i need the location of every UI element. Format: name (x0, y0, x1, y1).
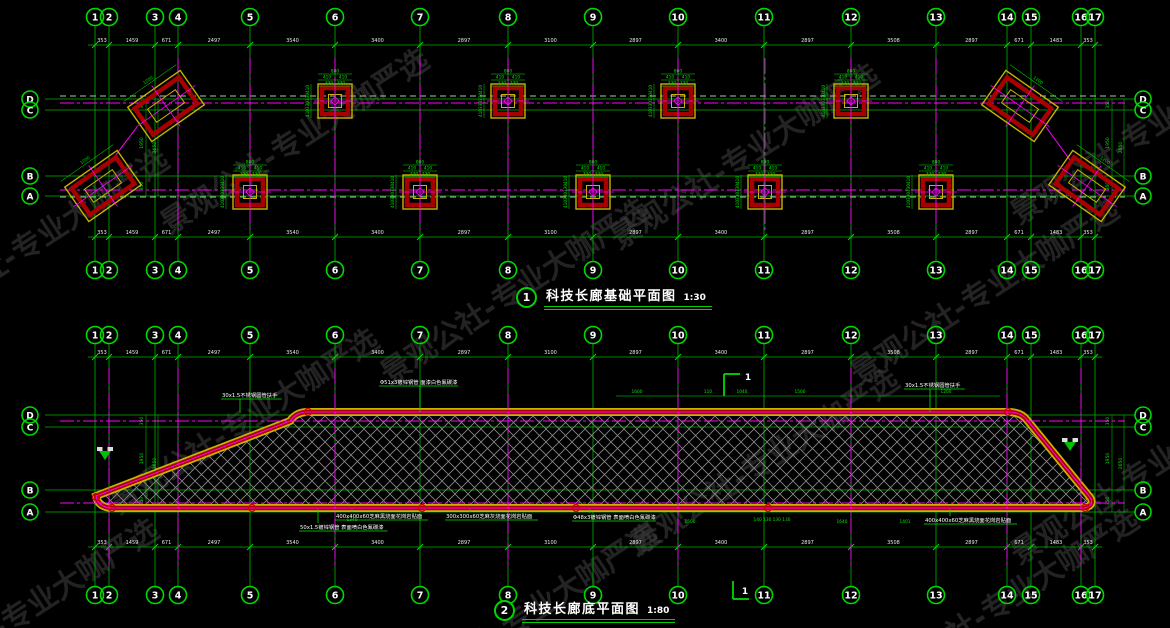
footing-dim-value: 410 (220, 176, 226, 184)
footing-dim-value: 410 (238, 166, 246, 172)
detail-dim: 1200 (941, 389, 952, 395)
footing-dim-value: 410 (478, 109, 484, 117)
dimension-value: 353 (1083, 38, 1093, 44)
footing-dim-value: 410 (496, 75, 504, 81)
dimension-value: 3400 (715, 38, 728, 44)
dimension-value: 2897 (965, 230, 978, 236)
footing-dim-value: 410 (735, 200, 741, 208)
footing-dim-value: 330 (305, 101, 311, 109)
detail-dim: 1500 (795, 389, 806, 395)
footing-dim-value: 410 (563, 200, 569, 208)
dimension-value: 2897 (629, 540, 642, 546)
dimension-value: 1459 (126, 350, 139, 356)
footing-dim-value: 330 (767, 172, 775, 178)
dimension-value: 3100 (544, 540, 557, 546)
centerline-diagonal (1046, 127, 1070, 160)
axis-bubble-label: 4 (175, 330, 182, 341)
note-text: 30x1.5不锈钢圆管扶手 (222, 391, 278, 399)
note-text: Φ48x3镀锌钢管 表面喷白色氟碳漆 (573, 513, 656, 521)
dimension-value: 353 (97, 38, 107, 44)
cad-viewport: 景观公社-专业大咖严选景观公社-专业大咖严选景观公社-专业大咖严选景观公社-专业… (0, 0, 1170, 628)
dimension-value: 671 (162, 38, 172, 44)
axis-bubble-label: 13 (929, 12, 942, 23)
dimension-value: 3100 (544, 38, 557, 44)
drawing-2-scale: 1:80 (647, 606, 669, 616)
footing-dim-value: 330 (735, 184, 741, 192)
drawing-2-label: 科技长廊底平面图 (524, 602, 640, 617)
axis-bubble-label: 17 (1088, 12, 1101, 23)
drawing-2-title: 2 科技长廊底平面图1:80 (494, 598, 675, 623)
dimension-value: 3100 (544, 350, 557, 356)
row-dim-value: 1950 (139, 453, 145, 465)
dimension-value: 3400 (371, 540, 384, 546)
dimension-value: 3400 (715, 540, 728, 546)
footing-rotated: 1200 (117, 58, 210, 148)
drawing-1-scale: 1:30 (684, 293, 706, 303)
axis-bubble-label: 12 (844, 12, 857, 23)
footing-dim-value: 1200 (142, 75, 155, 86)
footing-dim-value: 410 (940, 166, 948, 172)
footing (654, 74, 699, 122)
dimension-value: 2897 (801, 350, 814, 356)
dimension-value: 671 (162, 230, 172, 236)
dimension-value: 2897 (629, 350, 642, 356)
axis-bubble-label: 14 (1000, 12, 1014, 23)
axis-bubble-label: A (1140, 508, 1147, 518)
dimension-value: 671 (1014, 350, 1024, 356)
axis-bubble-label: 5 (247, 265, 254, 276)
drawing-1-number-bubble: 1 (516, 287, 537, 308)
dimension-value: 353 (1083, 540, 1093, 546)
axis-bubble-label: 11 (757, 12, 770, 23)
dimension-value: 353 (97, 230, 107, 236)
footing-dim-value: 330 (563, 192, 569, 200)
footing-dim-value: 330 (755, 172, 763, 178)
watermark-text: 景观公社-专业大咖严选 (0, 512, 165, 628)
footing-dim-value: 410 (735, 176, 741, 184)
drawing-1-label: 科技长廊基础平面图 (546, 289, 677, 304)
footing-dim-value: 800 (331, 69, 339, 75)
cad-drawing-svg: 景观公社-专业大咖严选景观公社-专业大咖严选景观公社-专业大咖严选景观公社-专业… (0, 0, 1170, 628)
dimension-value: 2897 (458, 230, 471, 236)
footing-dim-value: 800 (674, 69, 682, 75)
footing-dim-value: 410 (906, 176, 912, 184)
dimension-value: 3400 (715, 350, 728, 356)
dimension-value: 1483 (1050, 230, 1063, 236)
dimension-value: 2897 (965, 38, 978, 44)
row-dim-overall: 2650 (1118, 458, 1124, 470)
footing-dim-value: 330 (220, 184, 226, 192)
axis-bubble-label: 15 (1024, 590, 1037, 601)
dimension-value: 1483 (1050, 38, 1063, 44)
dimension-value: 2897 (629, 38, 642, 44)
detail-dim: 1500 (685, 519, 696, 525)
footing-dim-value: 800 (246, 160, 254, 166)
footing-dim-value: 410 (682, 75, 690, 81)
footing-dim-value: 410 (648, 109, 654, 117)
footing-dim-value: 330 (220, 192, 226, 200)
note-text: 300x300x60芝麻灰烧面花岗岩贴面 (446, 512, 532, 520)
dimension-value: 3508 (887, 38, 900, 44)
axis-bubble-label: 1 (92, 265, 99, 276)
detail-dim: 1401 (900, 519, 911, 525)
footing-dim-value: 1200 (1032, 75, 1045, 86)
footing-dim-value: 330 (648, 101, 654, 109)
dimension-value: 671 (1014, 230, 1024, 236)
footing-dim-value: 330 (252, 172, 260, 178)
axis-bubble-label: 9 (590, 330, 597, 341)
dimension-value: 2497 (208, 350, 221, 356)
axis-bubble-label: 15 (1024, 12, 1037, 23)
footing-dim-value: 330 (583, 172, 591, 178)
axis-bubble-label: 11 (757, 590, 770, 601)
section-mark-label: 1 (742, 587, 748, 597)
footing (912, 165, 957, 213)
note-text: 50x1.5镀锌钢管 表面喷白色氟碳漆 (300, 523, 384, 531)
axis-bubble-label: 4 (175, 265, 182, 276)
footing-dim-value: 330 (510, 81, 518, 87)
footing-dim-value: 410 (839, 75, 847, 81)
axis-bubble-label: 3 (152, 330, 159, 341)
footing-dim-value: 410 (906, 200, 912, 208)
dimension-value: 2897 (965, 350, 978, 356)
footing-dim-value: 800 (847, 69, 855, 75)
axis-bubble-label: 12 (844, 590, 857, 601)
detail-dim: 1600 (632, 389, 643, 395)
axis-bubble-label: 5 (247, 590, 254, 601)
dimension-value: 2897 (801, 38, 814, 44)
axis-bubble-label: 1 (92, 330, 99, 341)
axis-bubble-label: C (27, 106, 34, 116)
axis-bubble-label: B (1140, 172, 1147, 182)
section-mark-label: 1 (745, 373, 751, 383)
axis-bubble-label: 15 (1024, 330, 1037, 341)
footing-dim-value: 410 (305, 109, 311, 117)
footing-dim-value: 410 (220, 200, 226, 208)
axis-bubble-label: 7 (417, 12, 424, 23)
axis-bubble-label: 11 (757, 330, 770, 341)
footing-dim-value: 800 (932, 160, 940, 166)
axis-bubble-label: D (26, 95, 33, 105)
dimension-value: 1459 (126, 230, 139, 236)
footing-dim-value: 330 (841, 81, 849, 87)
dimension-value: 3540 (286, 350, 299, 356)
axis-bubble-label: 13 (929, 265, 942, 276)
dimension-value: 3400 (371, 230, 384, 236)
axis-bubble-label: B (1140, 486, 1147, 496)
dimension-value: 353 (1083, 230, 1093, 236)
footing-dim-value: 410 (390, 176, 396, 184)
detail-dim: 110 (704, 389, 712, 395)
axis-bubble-label: 3 (152, 265, 159, 276)
dimension-value: 2897 (458, 350, 471, 356)
axis-bubble-label: D (1139, 95, 1146, 105)
detail-dim: 1640 (837, 519, 848, 525)
drawing-1-title: 1 科技长廊基础平面图1:30 (516, 285, 712, 310)
footing-dim-value: 330 (337, 81, 345, 87)
dimension-value: 3540 (286, 38, 299, 44)
footing-dim-value: 330 (325, 81, 333, 87)
footing-dim-value: 330 (390, 184, 396, 192)
footing-dim-value: 330 (498, 81, 506, 87)
row-dim-overall: 2650 (152, 142, 158, 154)
footing-dim-value: 330 (821, 101, 827, 109)
axis-bubble-label: 10 (671, 12, 685, 23)
axis-bubble-label: 14 (1000, 590, 1014, 601)
footing-dim-value: 410 (924, 166, 932, 172)
axis-bubble-label: 4 (175, 12, 182, 23)
footing-dim-value: 330 (735, 192, 741, 200)
footing-dim-value: 330 (938, 172, 946, 178)
note-text: Φ51x3镀锌钢管 面漆白色氟碳漆 (380, 378, 458, 386)
axis-bubble-label: B (27, 486, 34, 496)
footing-dim-value: 410 (512, 75, 520, 81)
axis-bubble-label: 17 (1088, 265, 1101, 276)
dimension-value: 2497 (208, 540, 221, 546)
detail-dim: 140 130 130 130 (754, 517, 791, 523)
detail-dim: 1340 (347, 517, 358, 523)
dimension-value: 2897 (965, 540, 978, 546)
axis-bubble-label: 10 (671, 330, 685, 341)
drawing-2-number-bubble: 2 (494, 600, 515, 621)
footing-dim-value: 330 (595, 172, 603, 178)
footing-dim-value: 410 (648, 85, 654, 93)
footing-dim-value: 800 (416, 160, 424, 166)
axis-bubble-label: 1 (92, 12, 99, 23)
axis-bubble-label: 8 (505, 265, 512, 276)
axis-bubble-label: 8 (505, 12, 512, 23)
footing-dim-value: 330 (648, 93, 654, 101)
footing-dim-value: 330 (305, 93, 311, 101)
axis-bubble-label: 3 (152, 12, 159, 23)
row-dim-value: 350 (1105, 497, 1111, 506)
footing-dim-value: 410 (769, 166, 777, 172)
footing-dim-value: 330 (422, 172, 430, 178)
footing-dim-value: 410 (478, 85, 484, 93)
footing-dim-value: 330 (390, 192, 396, 200)
axis-bubble-label: 17 (1088, 330, 1101, 341)
footing-dim-value: 800 (504, 69, 512, 75)
axis-bubble-label: 9 (590, 12, 597, 23)
dimension-value: 353 (97, 540, 107, 546)
footing-dim-value: 410 (339, 75, 347, 81)
axis-bubble-label: A (1140, 192, 1147, 202)
footing-dim-value: 410 (424, 166, 432, 172)
dimension-value: 671 (162, 540, 172, 546)
axis-bubble-label: 7 (417, 590, 424, 601)
footing-dim-value: 800 (589, 160, 597, 166)
footing-dim-value: 410 (597, 166, 605, 172)
dimension-value: 671 (1014, 540, 1024, 546)
footing-centerline (1006, 86, 1035, 127)
row-dim-overall: 2650 (152, 458, 158, 470)
axis-bubble-label: 10 (671, 265, 685, 276)
axis-bubble-label: 14 (1000, 330, 1014, 341)
footing-dim-value: 410 (305, 85, 311, 93)
footing-dim-value: 800 (761, 160, 769, 166)
axis-bubble-label: C (27, 423, 34, 433)
dimension-value: 3100 (544, 230, 557, 236)
axis-bubble-label: 2 (106, 265, 113, 276)
axis-bubble-label: 2 (106, 12, 113, 23)
axis-bubble-label: 7 (417, 265, 424, 276)
elevation-marker-triangle (1064, 442, 1076, 451)
footing-dim-value: 410 (563, 176, 569, 184)
footing-dim-value: 410 (254, 166, 262, 172)
axis-bubble-label: 17 (1088, 590, 1101, 601)
axis-bubble-label: 13 (929, 590, 942, 601)
dimension-value: 353 (97, 350, 107, 356)
axis-bubble-label: C (1140, 106, 1147, 116)
footing-dim-value: 410 (390, 200, 396, 208)
footing (484, 74, 529, 122)
footing-dim-value: 330 (906, 192, 912, 200)
dimension-value: 2497 (208, 38, 221, 44)
axis-bubble-label: 13 (929, 330, 942, 341)
footing-dim-value: 410 (666, 75, 674, 81)
footing-dim-value: 410 (821, 109, 827, 117)
dimension-value: 3508 (887, 540, 900, 546)
axis-bubble-label: 12 (844, 330, 857, 341)
axis-bubble-label: 15 (1024, 265, 1037, 276)
axis-bubble-label: 2 (106, 330, 113, 341)
dimension-value: 2897 (801, 230, 814, 236)
dimension-value: 2897 (458, 540, 471, 546)
note-text: 400x400x60芝麻黑烧面花岗岩贴面 (925, 516, 1011, 524)
dimension-value: 2897 (458, 38, 471, 44)
dimension-value: 1459 (126, 38, 139, 44)
axis-bubble-label: 5 (247, 12, 254, 23)
axis-bubble-label: 9 (590, 265, 597, 276)
footing-dim-value: 330 (821, 93, 827, 101)
detail-dim: 1040 (737, 389, 748, 395)
footing-rotated: 1200 (976, 58, 1069, 148)
footing-dim-value: 330 (680, 81, 688, 87)
dimension-value: 2897 (801, 540, 814, 546)
note-text: 30x1.5不锈钢圆管扶手 (905, 381, 961, 389)
dimension-value: 3508 (887, 350, 900, 356)
footing-dim-value: 410 (821, 85, 827, 93)
axis-bubble-label: 1 (92, 590, 99, 601)
dimension-value: 3400 (371, 38, 384, 44)
footing-dim-value: 410 (408, 166, 416, 172)
dimension-value: 3540 (286, 540, 299, 546)
footing-dim-value: 330 (853, 81, 861, 87)
footing-dim-value: 330 (668, 81, 676, 87)
footing-dim-value: 410 (753, 166, 761, 172)
axis-bubble-label: 6 (332, 12, 339, 23)
dimension-value: 3400 (715, 230, 728, 236)
footing-centerline (152, 86, 181, 127)
dimension-value: 671 (1014, 38, 1024, 44)
axis-bubble-label: 6 (332, 265, 339, 276)
row-dim-overall: 2650 (1118, 142, 1124, 154)
axis-bubble-label: 3 (152, 590, 159, 601)
footing-dim-value: 410 (323, 75, 331, 81)
axis-bubble-label: A (27, 508, 34, 518)
axis-bubble-label: 2 (106, 590, 113, 601)
axis-bubble-label: C (1140, 423, 1147, 433)
axis-bubble-label: 4 (175, 590, 182, 601)
elevation-marker-notch (103, 447, 108, 451)
axis-bubble-label: 11 (757, 265, 770, 276)
footing-dim-value: 330 (906, 184, 912, 192)
dimension-value: 2897 (629, 230, 642, 236)
dimension-value: 353 (1083, 350, 1093, 356)
elevation-marker-notch (1068, 438, 1073, 442)
footing-dim-value: 330 (563, 184, 569, 192)
footing-dim-value: 1200 (79, 155, 92, 166)
footing (311, 74, 356, 122)
dimension-value: 3400 (371, 350, 384, 356)
drawing-2-underline: 科技长廊底平面图1:80 (522, 598, 675, 623)
footing-dim-value: 330 (478, 101, 484, 109)
row-dim-value: 1950 (1105, 453, 1111, 465)
watermark-text: 景观公社-专业大咖严选 (154, 42, 435, 242)
footing-dim-value: 330 (478, 93, 484, 101)
row-dim-value: 1950 (139, 137, 145, 149)
axis-bubble-label: 5 (247, 330, 254, 341)
dimension-value: 1459 (126, 540, 139, 546)
dimension-value: 2497 (208, 230, 221, 236)
watermark-text: 景观公社-专业大咖严选 (844, 192, 1125, 392)
dimension-value: 1483 (1050, 540, 1063, 546)
footing (569, 165, 614, 213)
row-dim-value: 350 (1105, 100, 1111, 109)
footing-dim-value: 330 (410, 172, 418, 178)
axis-bubble-label: 6 (332, 590, 339, 601)
axis-bubble-label: 14 (1000, 265, 1014, 276)
footing-dim-value: 410 (581, 166, 589, 172)
dimension-value: 1483 (1050, 350, 1063, 356)
axis-bubble-label: A (27, 192, 34, 202)
axis-bubble-label: 8 (505, 330, 512, 341)
footing-dim-value: 330 (926, 172, 934, 178)
axis-bubble-label: B (27, 172, 34, 182)
dimension-value: 671 (162, 350, 172, 356)
axis-bubble-label: 6 (332, 330, 339, 341)
drawing-1-underline: 科技长廊基础平面图1:30 (544, 285, 712, 310)
axis-bubble-label: 7 (417, 330, 424, 341)
footing-dim-value: 410 (855, 75, 863, 81)
footing-dim-value: 330 (240, 172, 248, 178)
dimension-value: 3508 (887, 230, 900, 236)
footing (396, 165, 441, 213)
dimension-value: 3540 (286, 230, 299, 236)
row-dim-value: 1950 (1105, 137, 1111, 149)
axis-bubble-label: 12 (844, 265, 857, 276)
